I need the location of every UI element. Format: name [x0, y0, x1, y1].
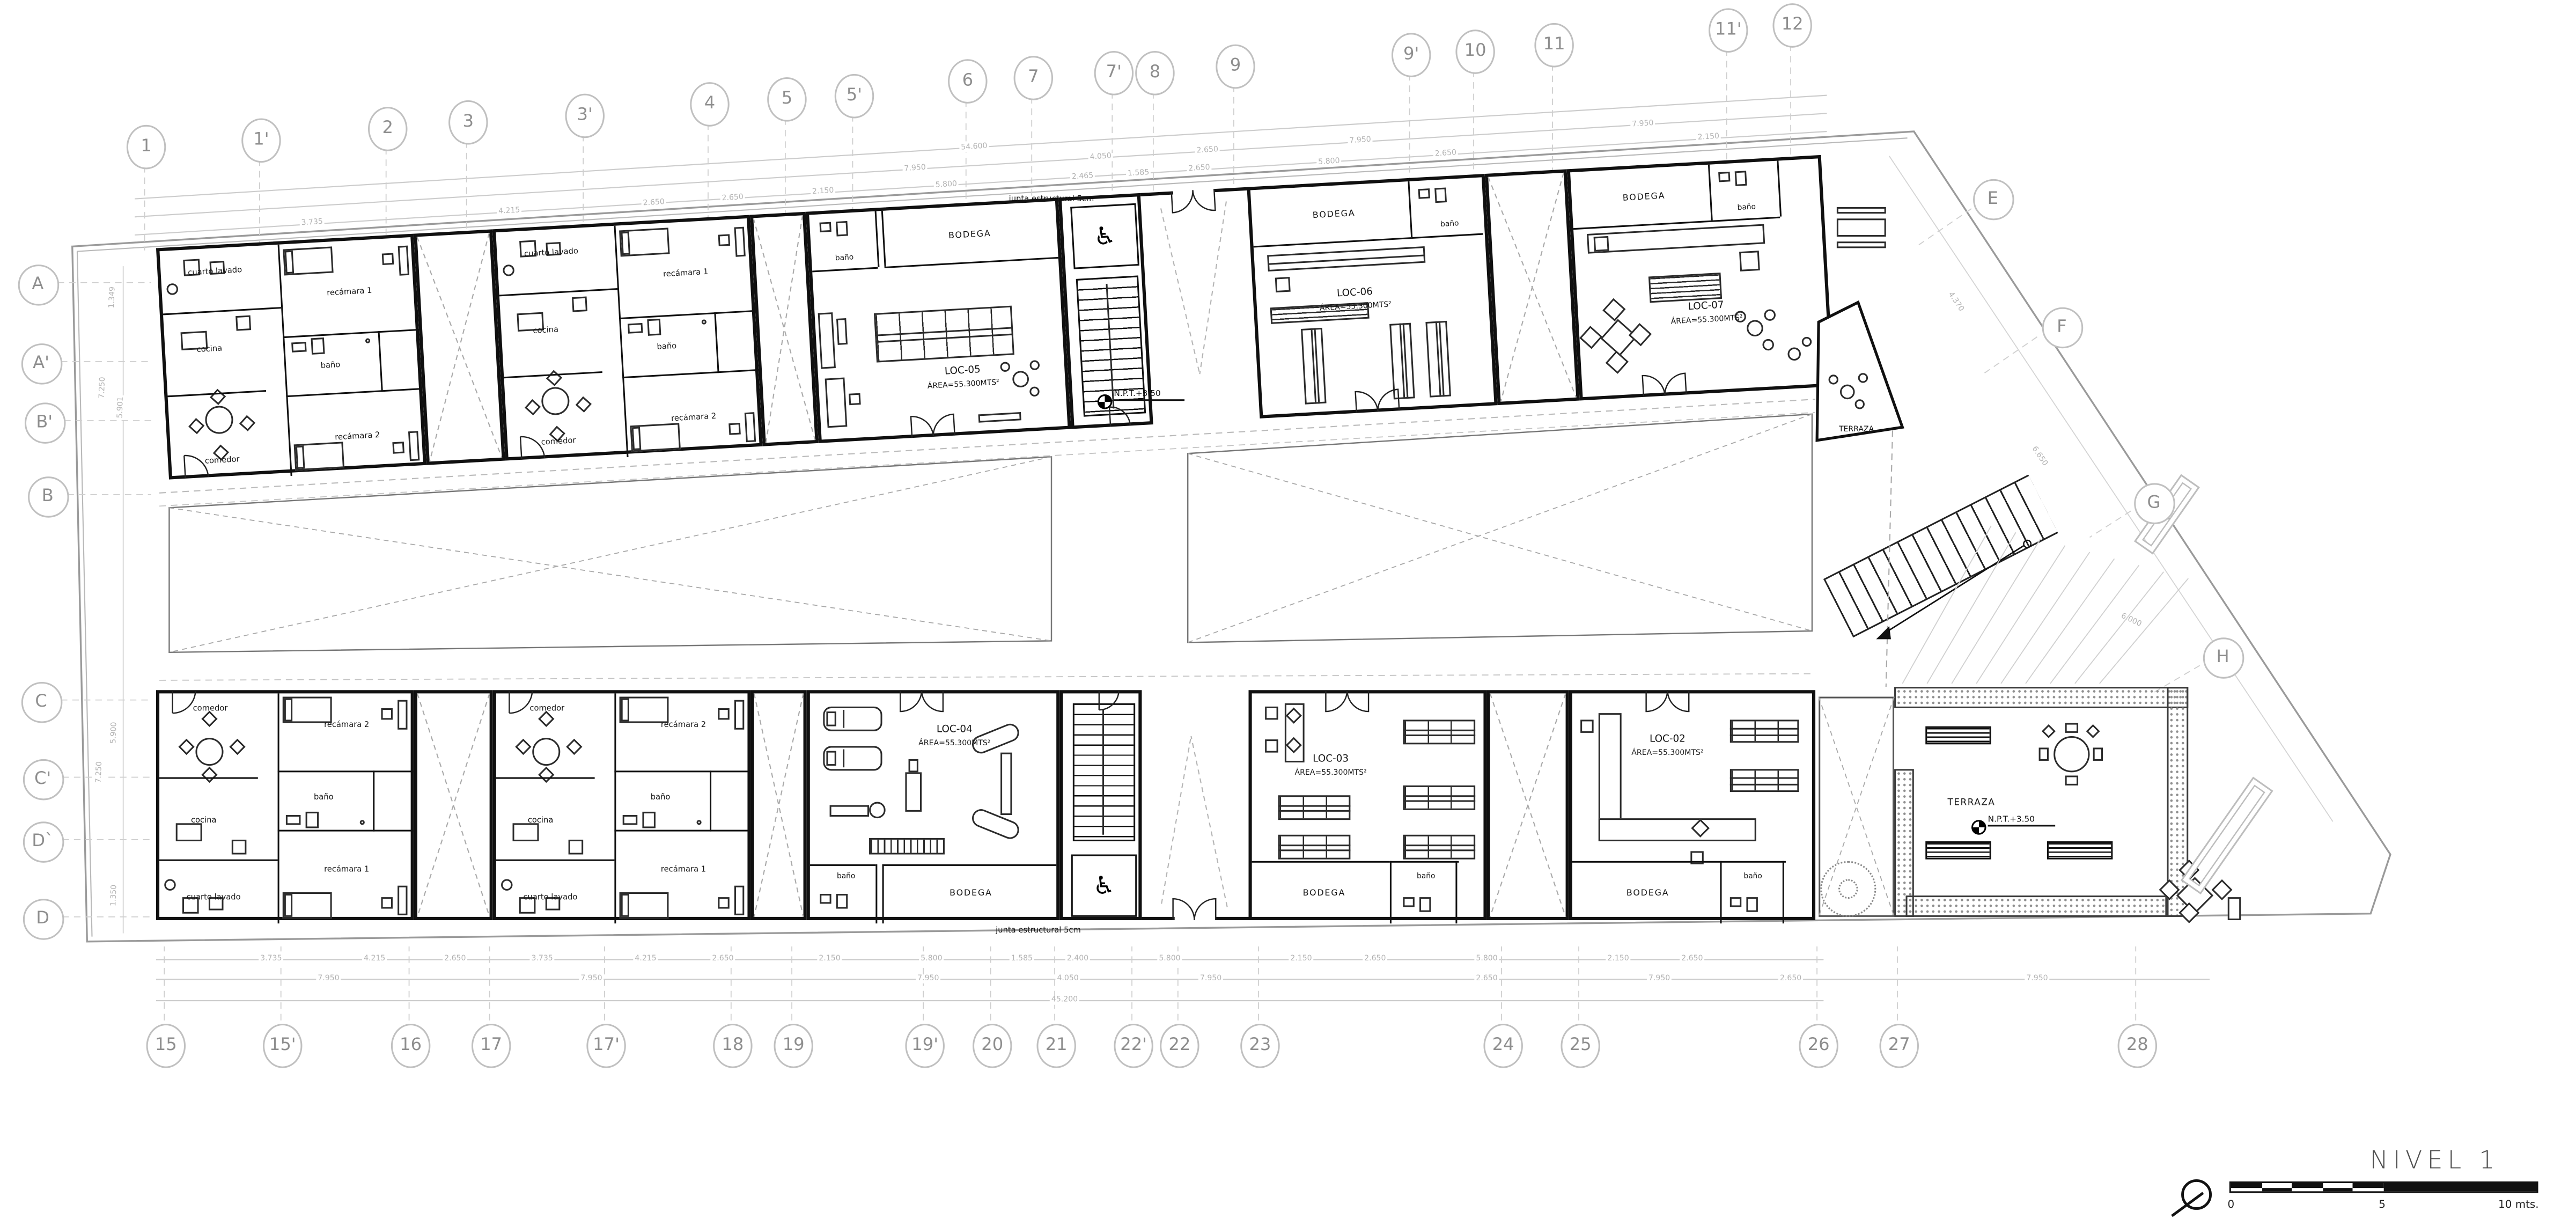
garden-x	[1819, 697, 1894, 917]
grid-bubble-bottom-25: 25	[1561, 1023, 1600, 1067]
ramp-hatch	[2075, 572, 2163, 684]
stair-arrowhead	[1876, 626, 1891, 640]
grid-bubble-bottom-24: 24	[1483, 1023, 1523, 1067]
cafe-chair	[1829, 375, 1838, 384]
grid-bubble-bottom-28: 28	[2118, 1023, 2158, 1067]
grid-bubble-bottom-15': 15'	[263, 1023, 303, 1067]
grid-bubble-top-5': 5'	[835, 73, 874, 118]
ramp-hatch	[2100, 578, 2188, 684]
level-note-terrace: N.P.T.+3.50	[1988, 815, 2055, 826]
label-terrace-upper: TERRAZA	[1839, 427, 1874, 435]
north-needle	[2172, 1193, 2203, 1216]
scale-seg	[2292, 1183, 2323, 1187]
stair-start	[2023, 540, 2030, 547]
grid-bubble-top-11: 11	[1534, 22, 1574, 67]
level-marker-corridor	[1098, 394, 1113, 409]
grid-bubble-top-3: 3	[448, 99, 488, 144]
grid-bubble-bottom-21: 21	[1036, 1023, 1076, 1067]
grid-bubble-top-1: 1	[127, 124, 166, 168]
grid-bubble-top-9': 9'	[1392, 32, 1431, 77]
grid-bubble-top-8: 8	[1135, 50, 1175, 94]
grid-bubble-top-4: 4	[690, 82, 730, 126]
grid-bubble-top-9: 9	[1216, 43, 1255, 88]
grid-bubble-top-2: 2	[368, 106, 408, 151]
scale-bar	[2229, 1181, 2538, 1193]
scale-seg-solid	[2384, 1183, 2537, 1192]
scale-five: 5	[2379, 1198, 2386, 1212]
cafe-chair	[1855, 399, 1865, 409]
scale-seg	[2231, 1183, 2262, 1187]
grid-bubble-bottom-18: 18	[713, 1023, 753, 1067]
grid-bubble-bottom-26: 26	[1799, 1023, 1838, 1067]
scale-ten: 10 mts.	[2498, 1198, 2539, 1212]
grid-bubble-top-10: 10	[1455, 29, 1495, 74]
exterior-linework	[0, 0, 2576, 1226]
grid-bubble-top-11': 11'	[1709, 8, 1748, 52]
terrace-wedge	[1817, 303, 1902, 441]
ramp-hatch	[1927, 532, 2015, 684]
grid-bubble-bottom-23: 23	[1240, 1023, 1280, 1067]
scale-seg	[2323, 1187, 2353, 1192]
grid-bubble-bottom-15: 15	[146, 1023, 186, 1067]
grid-bubble-bottom-20: 20	[973, 1023, 1012, 1067]
grid-bubble-top-7: 7	[1014, 55, 1054, 100]
grid-bubble-bottom-22': 22'	[1114, 1023, 1153, 1067]
scale-seg	[2262, 1187, 2292, 1192]
floor-plan: cuarto lavadococinacomedorrecámara 1baño…	[0, 0, 2576, 1226]
label-terrace-main: TERRAZA	[1947, 798, 1995, 808]
boundary-dash	[1886, 430, 1893, 687]
grid-bubble-top-3': 3'	[565, 93, 605, 137]
garden-x	[1819, 697, 1894, 917]
grid-bubble-bottom-27: 27	[1880, 1023, 1919, 1067]
grid-bubble-top-7': 7'	[1094, 50, 1134, 94]
grid-bubble-bottom-17: 17	[472, 1023, 511, 1067]
level-marker-terrace	[1971, 820, 1986, 835]
sheet-title: NIVEL 1	[2370, 1146, 2500, 1175]
grid-bubble-top-6: 6	[948, 58, 988, 103]
stair-arrow	[1883, 546, 2024, 634]
grid-bubble-top-5: 5	[767, 76, 807, 121]
scale-zero: 0	[2228, 1198, 2235, 1212]
level-note-corridor: N.P.T.+3.50	[1114, 390, 1183, 401]
grid-bubble-bottom-17': 17'	[586, 1023, 626, 1067]
cafe-table	[1840, 385, 1855, 400]
junta-note-top: junta estructural 5cm	[1009, 196, 1094, 204]
ramp-hatch	[1952, 539, 2040, 684]
grid-bubble-top-1': 1'	[241, 118, 281, 162]
grid-bubble-bottom-19: 19	[774, 1023, 813, 1067]
ramp-hatch	[2050, 566, 2139, 684]
grid-bubble-bottom-16: 16	[391, 1023, 431, 1067]
ramp-hatch	[2001, 552, 2089, 684]
grid-bubble-top-12: 12	[1772, 3, 1812, 47]
junta-note-bottom: junta estructural 5cm	[996, 928, 1081, 936]
scale-seg	[2353, 1183, 2384, 1187]
ramp-hatch	[2026, 559, 2114, 684]
cafe-chair	[1858, 373, 1868, 383]
grid-bubble-bottom-19': 19'	[905, 1023, 945, 1067]
grid-bubble-bottom-22: 22	[1160, 1023, 1199, 1067]
ramp-hatch	[1902, 526, 1991, 684]
